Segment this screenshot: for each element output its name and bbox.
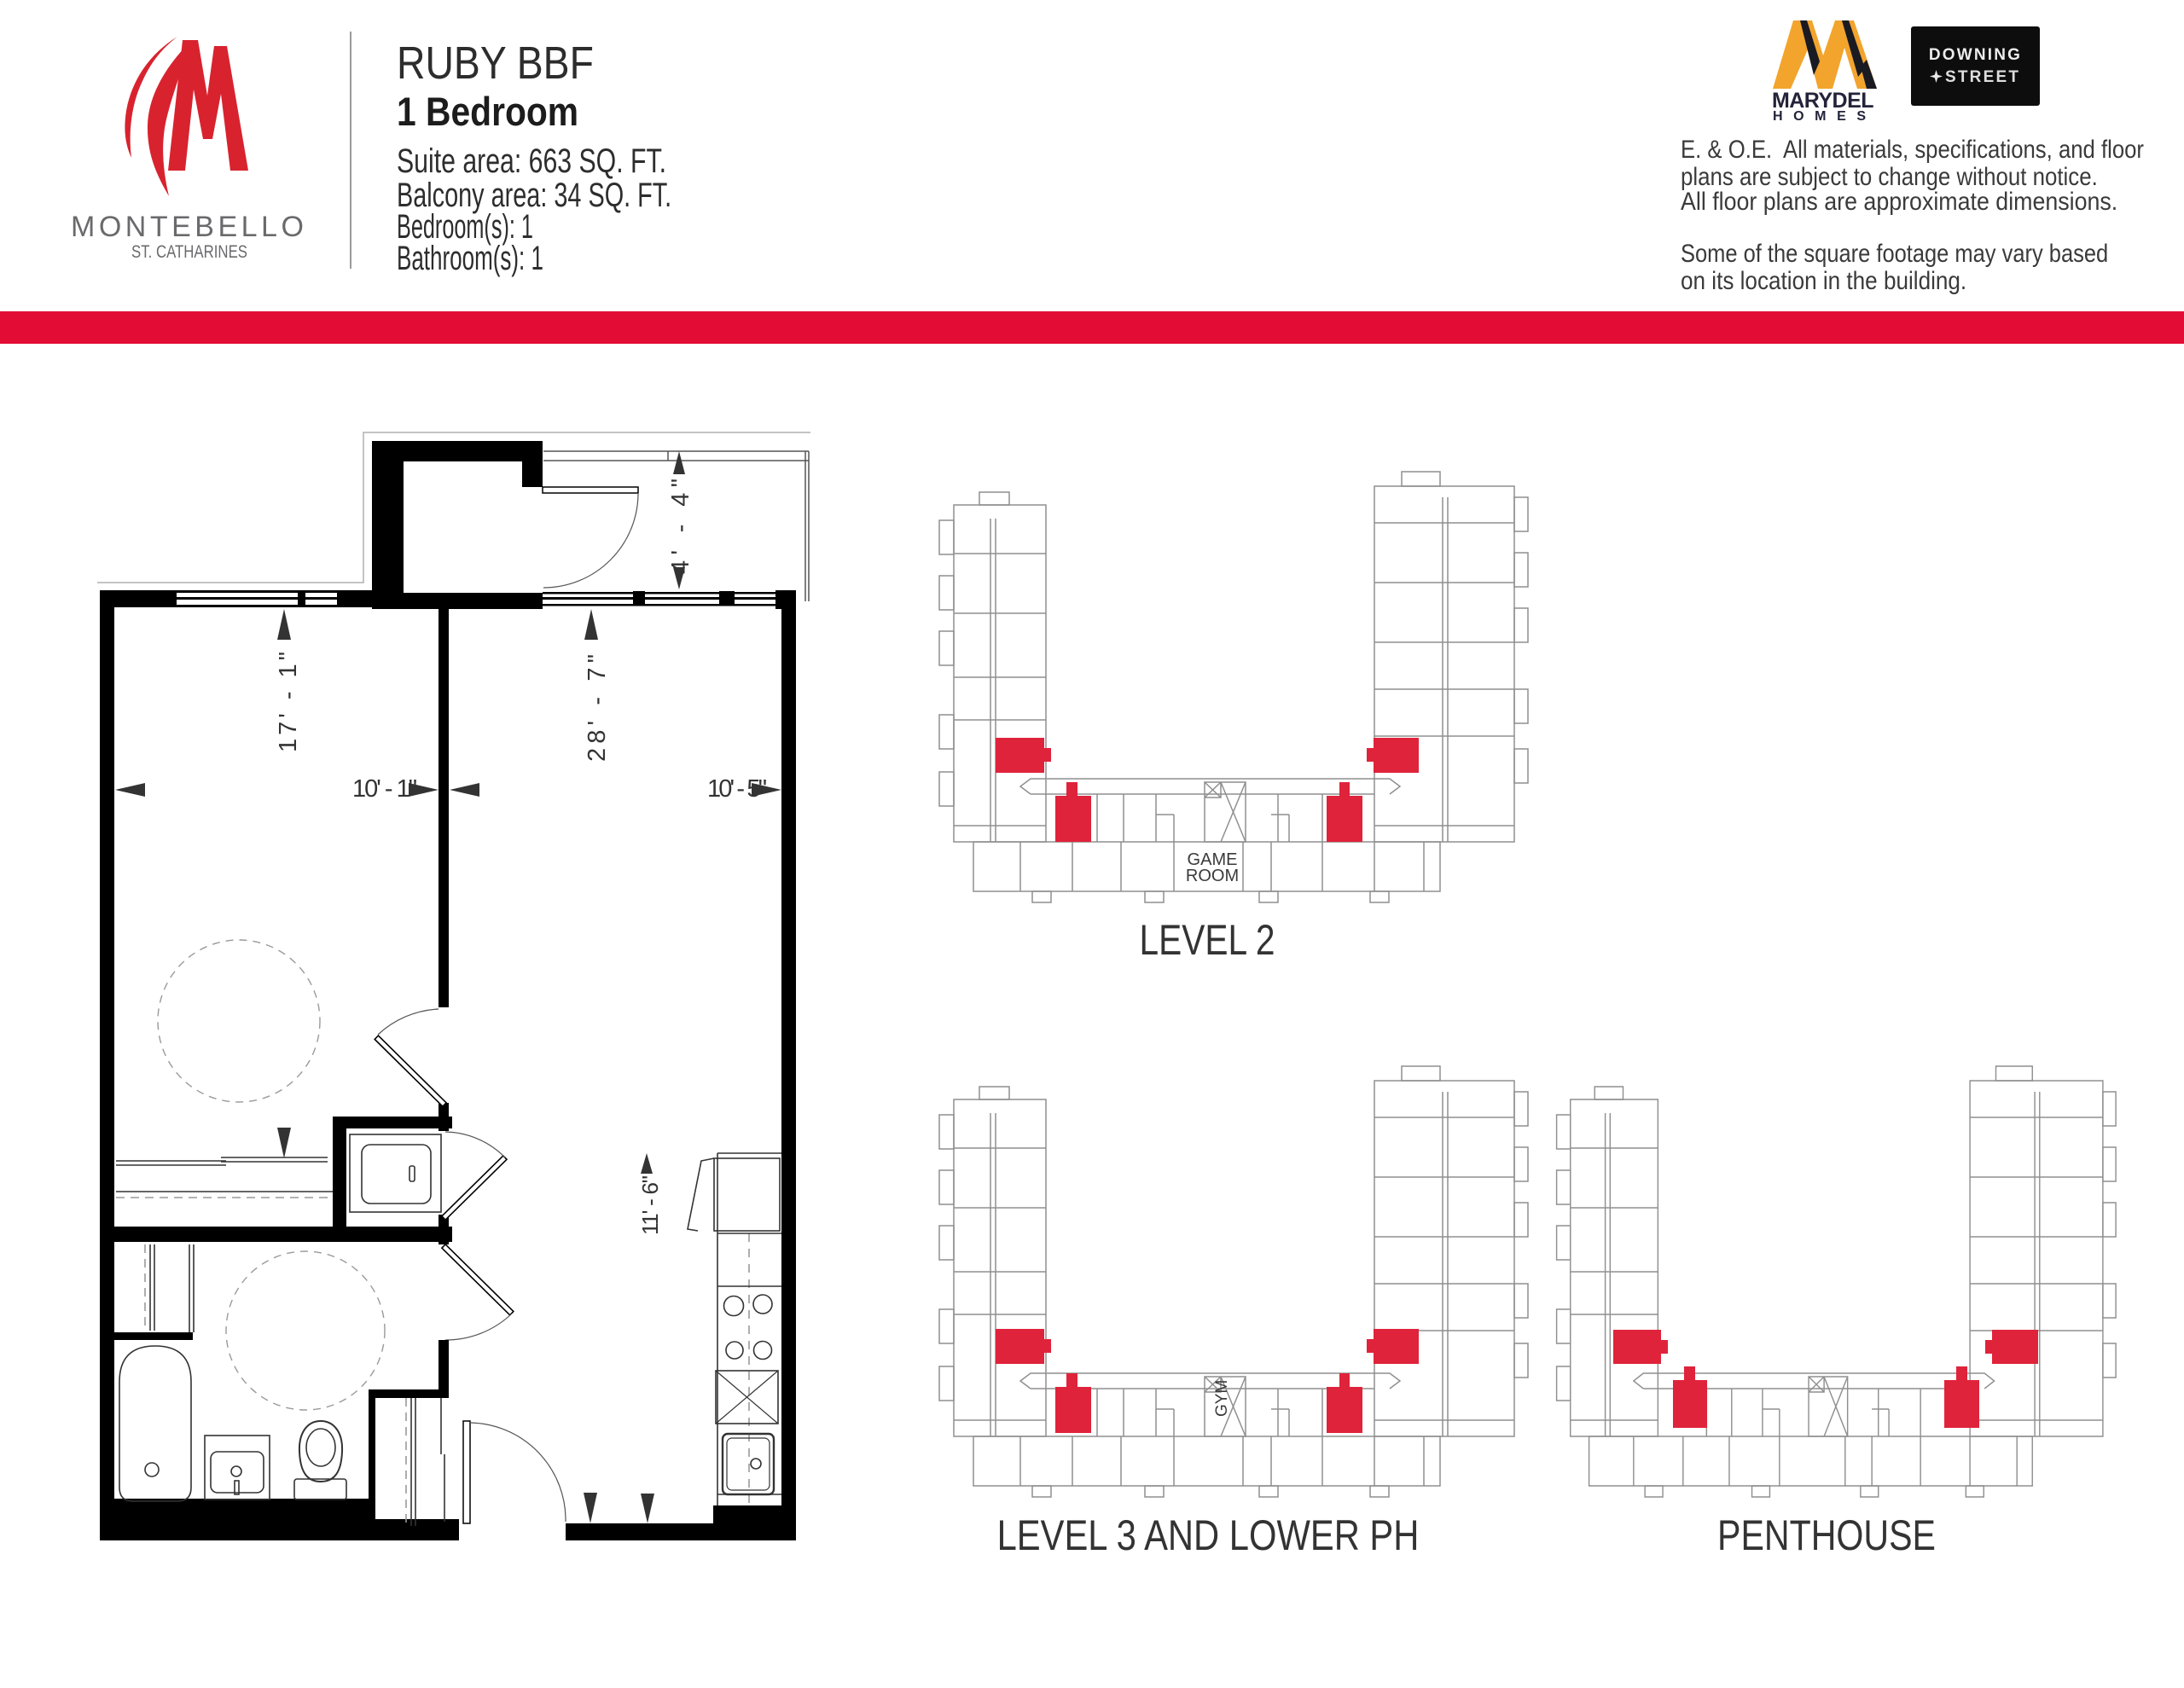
svg-text:10' - 5": 10' - 5" [707,775,767,803]
svg-text:10' - 1": 10' - 1" [352,775,417,803]
svg-text:17' - 1": 17' - 1" [275,652,302,752]
svg-text:PENTHOUSE: PENTHOUSE [1717,1511,1936,1559]
svg-text:GYM: GYM [1213,1380,1231,1417]
svg-text:LEVEL 3 AND LOWER PH: LEVEL 3 AND LOWER PH [997,1511,1420,1558]
svg-text:4' - 4": 4' - 4" [667,479,694,574]
svg-text:11' - 6": 11' - 6" [637,1175,663,1235]
svg-text:ROOM: ROOM [1186,867,1239,885]
svg-text:28' - 7": 28' - 7" [584,654,611,762]
svg-text:LEVEL 2: LEVEL 2 [1140,916,1275,964]
